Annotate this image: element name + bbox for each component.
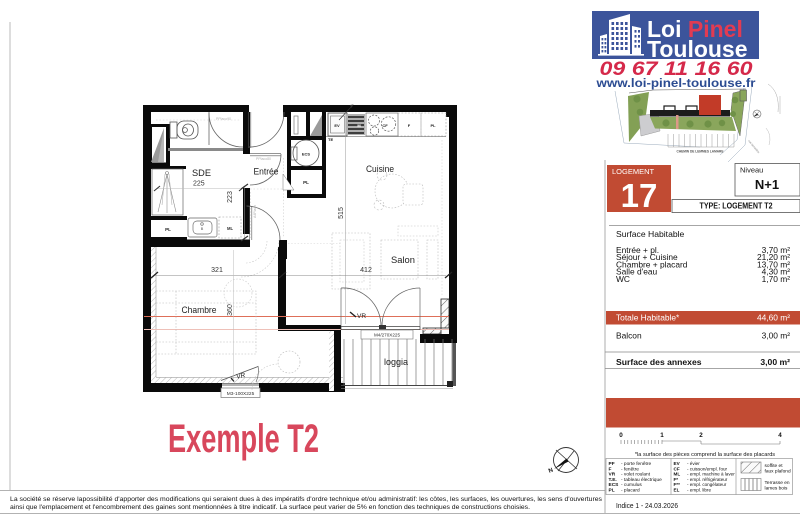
svg-text:Surface des annexes: Surface des annexes [616,357,702,367]
svg-text:EV: EV [674,461,681,466]
svg-text:VR: VR [357,313,366,320]
svg-text:PPlaco80: PPlaco80 [256,157,271,161]
svg-text:loggia: loggia [384,357,409,368]
svg-text:N+1: N+1 [755,177,779,192]
svg-text:www.loi-pinel-toulouse.fr: www.loi-pinel-toulouse.fr [595,76,755,90]
svg-text:Balcon: Balcon [616,331,642,341]
svg-text:TE: TE [328,137,333,142]
svg-text:PL: PL [303,180,309,185]
svg-text:PPlaco90: PPlaco90 [216,117,231,121]
svg-text:Entrée: Entrée [254,167,279,178]
svg-text:ainsi que l'emplacement et l'e: ainsi que l'emplacement et l'encombremen… [10,504,530,511]
svg-text:44,60 m²: 44,60 m² [757,313,790,323]
svg-text:PL: PL [609,488,615,494]
svg-text:CHEMIN DE LEMMES LAMARE: CHEMIN DE LEMMES LAMARE [677,150,724,154]
svg-text:223: 223 [227,191,234,203]
svg-text:3,00 m²: 3,00 m² [760,357,790,367]
svg-text:T.E.: T.E. [609,477,617,483]
svg-text:- fenêtre: - fenêtre [621,466,639,472]
svg-text:412: 412 [360,267,372,274]
svg-text:CF: CF [382,123,388,128]
svg-text:Terrasse en: Terrasse en [765,480,790,486]
svg-text:ML: ML [674,472,681,477]
svg-text:- volet roulant: - volet roulant [621,472,651,478]
svg-text:TYPE: LOGEMENT T2: TYPE: LOGEMENT T2 [700,202,773,211]
svg-text:SDE: SDE [192,168,211,179]
svg-text:La société se réserve lapossib: La société se réserve lapossibilité d'ap… [10,496,602,503]
svg-text:Salon: Salon [391,255,415,266]
svg-text:1: 1 [660,432,664,439]
svg-text:1,70 m²: 1,70 m² [762,274,791,284]
svg-text:M3-100X225: M3-100X225 [227,391,255,397]
svg-text:- tableau électrique: - tableau électrique [621,477,662,483]
svg-text:faux plafond: faux plafond [765,469,791,475]
svg-text:Surface Habitable: Surface Habitable [616,229,685,239]
svg-text:- empl. réfrigérateur: - empl. réfrigérateur [687,477,728,482]
svg-text:EL: EL [674,488,680,493]
svg-text:WC: WC [616,274,630,284]
svg-text:ECS: ECS [609,482,620,488]
svg-text:- cumulus: - cumulus [621,482,642,488]
svg-text:VR: VR [609,472,616,478]
svg-text:M4/270X225: M4/270X225 [374,333,400,338]
svg-text:- cuisson/empl. four: - cuisson/empl. four [687,466,728,471]
svg-text:F*: F* [674,477,679,482]
svg-text:Totale Habitable*: Totale Habitable* [616,313,680,323]
svg-text:CF: CF [674,466,680,471]
svg-text:PF: PF [609,461,615,467]
svg-text:- placard: - placard [621,488,640,494]
svg-text:- empl. congélateur: - empl. congélateur [687,482,727,487]
svg-text:321: 321 [211,267,223,274]
svg-text:225: 225 [193,181,205,188]
svg-text:lames bois: lames bois [765,486,789,492]
svg-text:soffite et: soffite et [765,463,784,469]
svg-text:Exemple T2: Exemple T2 [168,417,319,461]
svg-text:EV: EV [334,123,340,128]
svg-text:PL: PL [165,227,171,232]
svg-text:0: 0 [619,432,623,439]
svg-text:- évier: - évier [687,461,700,466]
svg-text:Indice 1 - 24.03.2026: Indice 1 - 24.03.2026 [616,501,678,510]
svg-text:A4Placo: A4Placo [253,205,257,218]
svg-text:Niveau: Niveau [740,166,763,175]
svg-text:Cuisine: Cuisine [366,164,394,175]
svg-text:*la surface des pièces compren: *la surface des pièces comprend la surfa… [635,452,775,458]
svg-text:LOGEMENT: LOGEMENT [612,167,655,176]
svg-text:- empl. machine à laver: - empl. machine à laver [687,472,735,477]
svg-text:515: 515 [338,207,345,219]
svg-text:- porte fenêtre: - porte fenêtre [621,461,651,467]
svg-text:4: 4 [778,432,782,439]
svg-text:- empl. libre: - empl. libre [687,488,711,493]
svg-text:ECS: ECS [302,152,311,157]
svg-text:2: 2 [699,432,703,439]
svg-text:17: 17 [621,177,658,214]
svg-text:F**: F** [674,482,681,487]
svg-text:B: B [201,227,204,231]
svg-text:ML: ML [227,226,233,231]
svg-text:Chambre: Chambre [182,305,217,316]
svg-text:PL: PL [430,123,436,128]
svg-text:3,00 m²: 3,00 m² [762,331,791,341]
svg-text:F: F [609,466,612,472]
